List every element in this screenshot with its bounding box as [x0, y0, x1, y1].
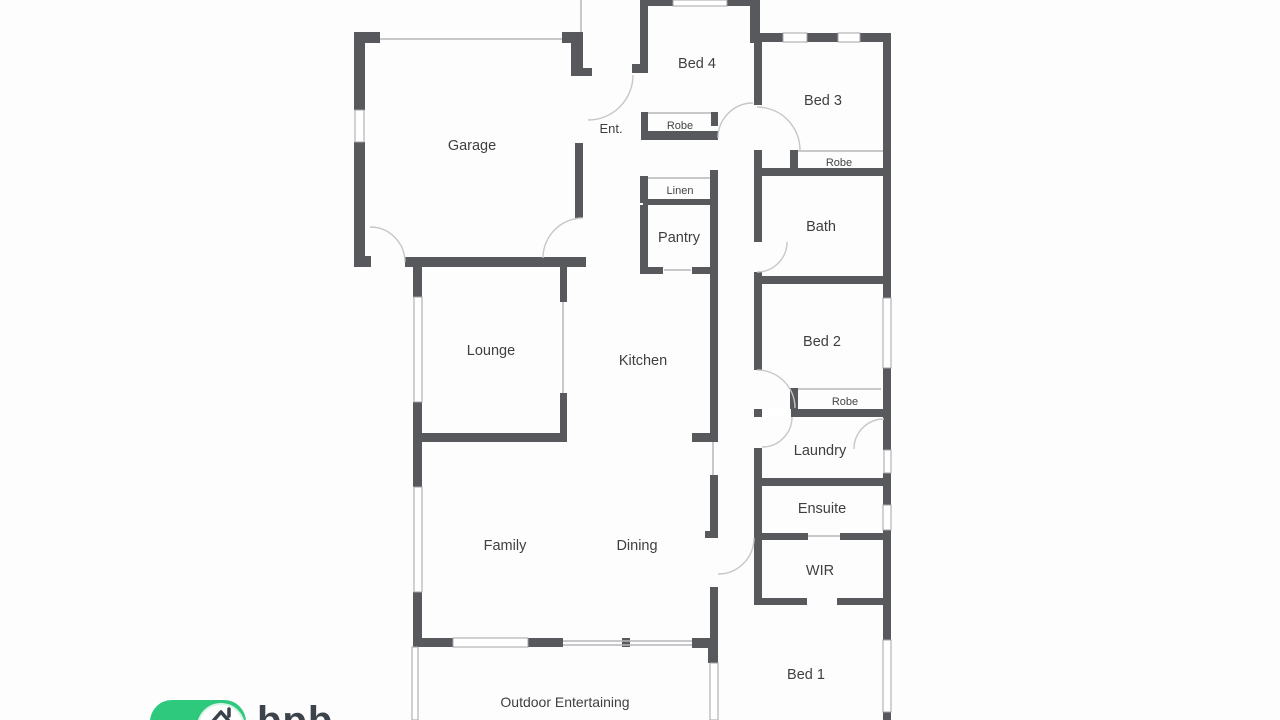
label-laundry: Laundry: [794, 443, 847, 459]
label-outdoor: Outdoor Entertaining: [500, 694, 629, 710]
laundry-door-opening: [762, 409, 791, 417]
wall: [354, 142, 365, 258]
label-bed1: Bed 1: [787, 667, 825, 683]
label-kitchen: Kitchen: [619, 353, 667, 369]
wall: [807, 33, 838, 42]
garage-side-door-arc: [370, 227, 405, 262]
floorplan-page: Garage Ent. Bed 4 Robe Bed 3 Robe Linen …: [0, 0, 1280, 720]
laundry-external-door: [884, 450, 891, 473]
wall: [837, 598, 891, 605]
bed1-suite-door-arc: [718, 538, 754, 574]
bed4-window: [673, 0, 727, 6]
bed3-door-arc: [757, 107, 800, 150]
wall: [708, 638, 718, 663]
wall: [640, 0, 673, 6]
wall: [754, 478, 891, 486]
wall: [418, 433, 567, 442]
label-dining: Dining: [616, 538, 657, 554]
wall: [754, 540, 762, 598]
family-window: [414, 487, 422, 592]
bed3-window-2: [838, 33, 860, 42]
wall: [405, 257, 586, 267]
family-south-window: [453, 638, 528, 647]
wall: [883, 473, 891, 505]
garage-entry-door-arc: [543, 218, 583, 258]
label-robe-bed4: Robe: [667, 120, 693, 132]
wall: [710, 170, 718, 442]
wall: [413, 638, 453, 647]
wall: [754, 533, 808, 540]
wall: [632, 64, 648, 73]
wall: [754, 33, 762, 105]
label-linen: Linen: [667, 185, 694, 197]
wall: [579, 68, 592, 76]
bed2-window: [883, 298, 891, 368]
label-bath: Bath: [806, 219, 836, 235]
label-pantry: Pantry: [658, 230, 701, 246]
wall: [640, 176, 648, 203]
garage-window: [355, 110, 364, 142]
floorplan-drawing: Garage Ent. Bed 4 Robe Bed 3 Robe Linen …: [0, 0, 1280, 720]
wall: [692, 267, 710, 274]
wall: [413, 402, 422, 487]
wall: [754, 448, 762, 533]
bed4-door-arc: [718, 103, 753, 138]
wall: [754, 150, 762, 242]
wall: [840, 533, 891, 540]
wall: [641, 131, 718, 140]
ensuite-window: [883, 505, 891, 530]
lounge-window: [414, 297, 422, 402]
laundry-external-door-arc: [854, 419, 884, 449]
bed2-door-arc: [757, 370, 795, 408]
wall: [754, 276, 891, 284]
wall: [560, 265, 567, 302]
wall: [640, 0, 648, 66]
label-ensuite: Ensuite: [798, 501, 846, 517]
bath-door-arc: [757, 242, 787, 272]
wall: [883, 530, 891, 640]
bed1-west-glazing: [710, 663, 718, 720]
label-wir: WIR: [806, 563, 834, 579]
wall: [710, 475, 718, 538]
wall: [711, 112, 718, 126]
wall: [575, 143, 583, 218]
front-door-arc: [588, 75, 633, 120]
wall: [705, 531, 718, 538]
brand-logo: bpb: [150, 699, 333, 720]
patio-edge: [412, 647, 418, 720]
label-entry: Ent.: [599, 121, 622, 136]
wall: [528, 638, 563, 647]
wall: [640, 205, 648, 268]
wall: [640, 267, 663, 274]
logo-text: bpb: [257, 699, 333, 720]
wall: [562, 32, 583, 43]
wall: [883, 33, 891, 298]
wall: [354, 32, 365, 110]
wall: [790, 150, 798, 176]
label-robe-bed2: Robe: [832, 396, 858, 408]
wall: [560, 393, 567, 441]
wall: [692, 433, 718, 442]
wall: [413, 265, 422, 297]
wall: [883, 712, 891, 720]
bed1-window: [883, 640, 891, 712]
label-garage: Garage: [448, 138, 496, 154]
label-bed4: Bed 4: [678, 56, 716, 72]
label-bed2: Bed 2: [803, 334, 841, 350]
label-robe-bed3: Robe: [826, 157, 852, 169]
wall: [354, 256, 371, 267]
wall: [643, 199, 718, 205]
laundry-door-arc: [762, 417, 792, 447]
wall: [754, 272, 762, 370]
wall: [754, 598, 807, 605]
label-bed3: Bed 3: [804, 93, 842, 109]
label-lounge: Lounge: [467, 343, 515, 359]
wall: [754, 168, 891, 176]
bed3-window-1: [783, 33, 807, 42]
label-family: Family: [484, 538, 527, 554]
